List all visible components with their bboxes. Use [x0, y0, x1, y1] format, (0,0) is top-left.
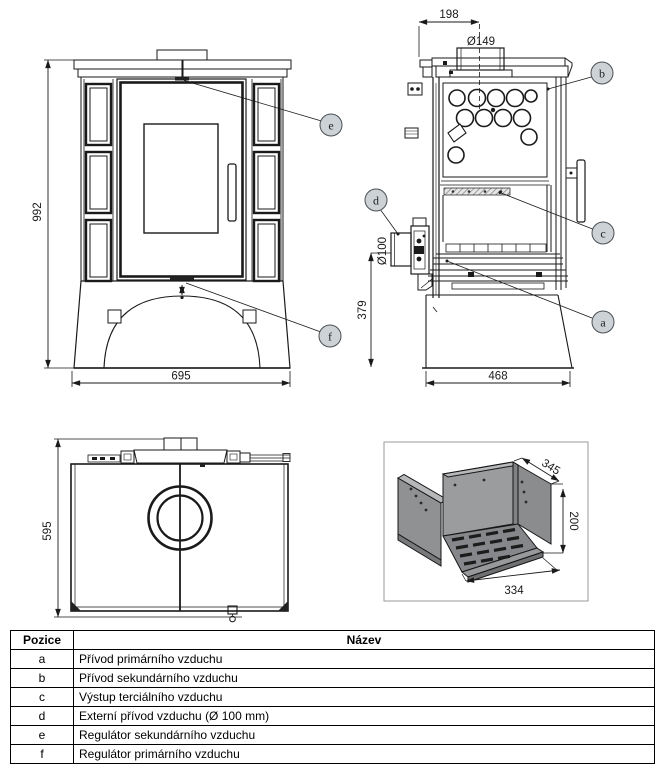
name-cell: Externí přívod vzduchu (Ø 100 mm) — [74, 707, 655, 726]
door-handle — [228, 164, 236, 221]
callout-a-label: a — [600, 316, 606, 330]
external-air-inlet: Ø100 — [377, 218, 432, 290]
callout-e-leader — [184, 81, 322, 122]
position-cell: f — [11, 745, 74, 764]
callout-f-label: f — [328, 330, 332, 344]
base-arch — [104, 296, 260, 368]
table-row: c Výstup terciálního vzduchu — [11, 688, 655, 707]
name-cell: Přívod sekundárního vzduchu — [74, 669, 655, 688]
firebox-section — [428, 185, 568, 289]
flue-collar: Ø149 — [450, 24, 512, 112]
callout-f-leader — [186, 283, 320, 332]
callout-e-label: e — [328, 119, 333, 133]
position-cell: e — [11, 726, 74, 745]
callout-d: d — [365, 189, 400, 236]
dimension-198: 198 — [419, 9, 479, 57]
callout-a: a — [446, 260, 615, 334]
side-base — [422, 295, 574, 368]
dimension-595-label: 595 — [42, 521, 54, 540]
dimension-149-label: Ø149 — [467, 36, 495, 48]
door-window — [144, 124, 218, 233]
callout-f: f — [186, 283, 341, 347]
top-view-back-fittings — [88, 438, 290, 463]
top-plate — [74, 50, 291, 77]
table-row: f Regulátor primárního vzduchu — [11, 745, 655, 764]
tertiary-air-outlet — [440, 177, 550, 195]
name-cell: Přívod primárního vzduchu — [74, 650, 655, 669]
dimension-198-label: 198 — [439, 9, 458, 21]
table-row: a Přívod primárního vzduchu — [11, 650, 655, 669]
side-section-view-drawing: 198 Ø149 — [352, 0, 666, 392]
table-row: b Přívod sekundárního vzduchu — [11, 669, 655, 688]
callout-d-label: d — [373, 194, 379, 208]
name-cell: Regulátor primárního vzduchu — [74, 745, 655, 764]
top-view-handle — [228, 606, 237, 622]
dimension-595: 595 — [42, 439, 242, 617]
header-position: Pozice — [11, 631, 74, 650]
table-row: e Regulátor sekundárního vzduchu — [11, 726, 655, 745]
primary-air-regulator — [170, 277, 194, 281]
side-top-plate — [420, 58, 572, 77]
dimension-200-label: 200 — [567, 511, 579, 530]
door — [117, 78, 246, 300]
tile-column-right — [252, 79, 281, 281]
secondary-air-regulator — [175, 78, 189, 81]
name-cell: Výstup terciálního vzduchu — [74, 688, 655, 707]
dimension-468-label: 468 — [488, 371, 507, 383]
dimension-100-label: Ø100 — [377, 237, 389, 265]
position-cell: d — [11, 707, 74, 726]
dimension-695-label: 695 — [171, 371, 190, 383]
table-row: d Externí přívod vzduchu (Ø 100 mm) — [11, 707, 655, 726]
dimension-992: 992 — [32, 60, 78, 368]
air-chamber — [443, 83, 547, 177]
dimension-379: 379 — [357, 253, 391, 367]
dimension-379-label: 379 — [357, 300, 369, 319]
dimension-992-label: 992 — [32, 202, 44, 221]
side-door-handle — [577, 160, 585, 222]
top-view-drawing: 595 — [28, 425, 323, 625]
tile-column-left — [84, 79, 113, 281]
position-cell: a — [11, 650, 74, 669]
technical-drawing-page: 992 — [0, 0, 666, 769]
callout-c-label: c — [600, 227, 605, 241]
position-cell: c — [11, 688, 74, 707]
dimension-695: 695 — [72, 371, 290, 388]
callout-b-label: b — [599, 67, 605, 81]
dimension-468: 468 — [426, 371, 570, 388]
header-name: Název — [74, 631, 655, 650]
position-cell: b — [11, 669, 74, 688]
dimension-334-label: 334 — [504, 585, 524, 597]
callout-e: e — [184, 81, 342, 137]
flue-stub — [157, 50, 207, 60]
name-cell: Regulátor sekundárního vzduchu — [74, 726, 655, 745]
firebox-isometric-drawing: 345 200 334 — [378, 436, 593, 608]
parts-table: Pozice Název a Přívod primárního vzduchu… — [10, 630, 655, 764]
front-view-drawing: 992 — [28, 8, 350, 400]
table-header-row: Pozice Název — [11, 631, 655, 650]
